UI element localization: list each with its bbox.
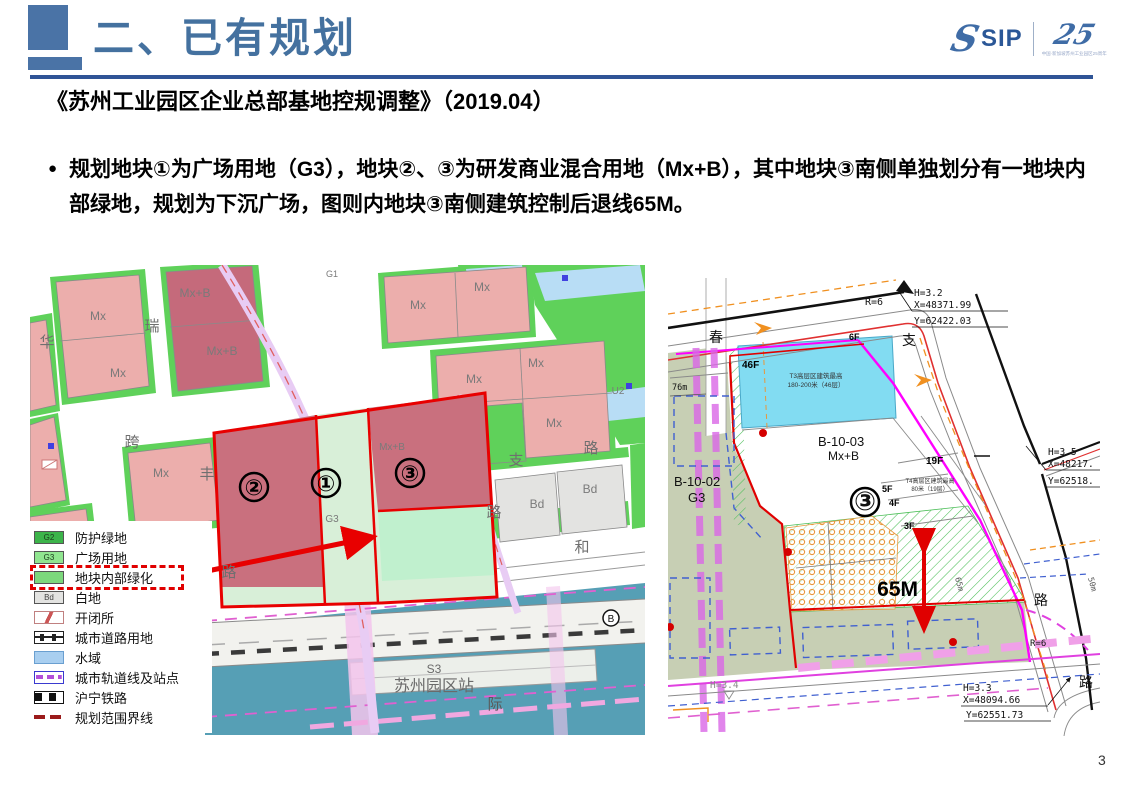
- parcel-b1002-use: G3: [688, 490, 705, 505]
- block-label-mx8: Mx: [153, 466, 169, 480]
- road-label-lu3: 路: [583, 440, 598, 457]
- callout1-x: X=48371.99: [914, 300, 971, 311]
- road-label-hua: 华: [39, 334, 54, 351]
- block-label-g3: G3: [325, 514, 339, 525]
- legend-item-water: 水域: [34, 647, 212, 667]
- road-label-zhi: 支: [508, 452, 523, 469]
- legend-label: 水域: [75, 648, 101, 667]
- legend-swatch-water: [34, 651, 64, 664]
- setback-65m-label: 65M: [877, 578, 918, 601]
- callout3-h: H=3.3: [963, 683, 992, 694]
- block-label-mx3: Mx: [410, 298, 426, 312]
- title-decoration-square: [28, 5, 68, 50]
- legend-swatch-road: [34, 631, 64, 644]
- legend-item-g2: G2 防护绿地: [34, 527, 212, 547]
- block-label-mxb-inner: Mx+B: [379, 442, 405, 453]
- t3-note-line2: 180-200米（46层）: [787, 380, 844, 389]
- block-label-mx2: Mx: [110, 366, 126, 380]
- legend-label: 开闭所: [75, 608, 114, 627]
- block-label-mx4: Mx: [474, 280, 490, 294]
- floor-5f: 5F: [882, 484, 893, 494]
- road-label-lu1: 路: [221, 564, 236, 581]
- block-label-g1: G1: [326, 269, 338, 279]
- legend-swatch-substation: [34, 611, 64, 624]
- callout3-y: Y=62551.73: [966, 710, 1023, 721]
- page-title: 二、已有规划: [93, 4, 357, 64]
- anniversary-25: 25: [1051, 21, 1098, 49]
- legend-item-substation: 开闭所: [34, 607, 212, 627]
- sip-logo: S SIP 25 中国·新加坡苏州工业园区25周年: [952, 14, 1117, 64]
- page-number: 3: [1098, 752, 1106, 768]
- dim-76m: 76m: [672, 383, 687, 393]
- road-label-lu2: 路: [486, 504, 501, 521]
- legend-label: 白地: [75, 588, 101, 607]
- floor-46f: 46F: [742, 360, 759, 371]
- callout2-x: X=48217.: [1048, 459, 1094, 470]
- block-label-bd1: Bd: [530, 497, 545, 511]
- legend-swatch-boundary: [34, 711, 64, 724]
- block-label-u2: U2: [612, 386, 625, 397]
- callout1-h: H=3.2: [914, 288, 943, 299]
- radius-r6-top: R=6: [865, 297, 883, 308]
- road-label-lu1: 路: [1034, 592, 1048, 608]
- station-name: 苏州园区站: [394, 677, 474, 695]
- logo-tagline: 中国·新加坡苏州工业园区25周年: [1042, 51, 1107, 57]
- plot-number-2: ②: [245, 475, 264, 500]
- bullet-text: 规划地块①为广场用地（G3），地块②、③为研发商业混合用地（Mx+B），其中地块…: [69, 152, 1088, 222]
- document-title: 《苏州工业园区企业总部基地控规调整》（2019.04）: [46, 84, 555, 116]
- legend-swatch-railway: [34, 691, 64, 704]
- block-label-mx7: Mx: [546, 416, 562, 430]
- logo-divider: [1033, 22, 1034, 56]
- sip-logo-text: SIP: [981, 25, 1023, 53]
- block-label-mx1: Mx: [90, 309, 106, 323]
- legend-label: 规划范围界线: [75, 708, 153, 727]
- callout1-y: Y=62422.03: [914, 316, 971, 327]
- map-legend: G2 防护绿地 G3 广场用地 地块内部绿化 Bd 白地 开闭所 城市道路用地 …: [30, 521, 212, 733]
- floor-3f: 3F: [904, 521, 915, 531]
- title-decoration-bar: [28, 57, 82, 70]
- planning-area: [214, 393, 497, 607]
- block-label-mx6: Mx: [528, 356, 544, 370]
- block-label-mxb2: Mx+B: [206, 344, 237, 358]
- t4-note-line2: 80米（19层）: [911, 485, 948, 493]
- road-label-lu2: 路: [1079, 674, 1093, 690]
- legend-swatch-metro: [34, 671, 64, 684]
- t4-note-line1: T4高层区建筑最高: [905, 477, 954, 485]
- road-label-feng: 丰: [199, 466, 214, 483]
- bullet-marker: ●: [48, 152, 57, 222]
- callout4-h: H=3.4: [710, 680, 739, 691]
- road-label-ji: 际: [487, 696, 502, 713]
- legend-item-boundary: 规划范围界线: [34, 707, 212, 727]
- legend-label: 城市道路用地: [75, 628, 153, 647]
- legend-item-g3: G3 广场用地: [34, 547, 212, 567]
- block-label-mx5: Mx: [466, 372, 482, 386]
- floor-6f: 6F: [849, 332, 860, 342]
- legend-swatch-bd: Bd: [34, 591, 64, 604]
- radius-r6-bottom: R=6: [1030, 639, 1046, 649]
- road-label-he: 和: [574, 539, 589, 556]
- parcel-b1002: B-10-02: [674, 474, 720, 489]
- station-code: S3: [427, 662, 442, 676]
- callout2-y: Y=62518.: [1048, 476, 1094, 487]
- legend-swatch-g3: G3: [34, 551, 64, 564]
- slide: 二、已有规划 S SIP 25 中国·新加坡苏州工业园区25周年 《苏州工业园区…: [0, 0, 1123, 794]
- legend-item-bd: Bd 白地: [34, 587, 212, 607]
- legend-label: 城市轨道线及站点: [75, 668, 179, 687]
- legend-item-metro: 城市轨道线及站点: [34, 667, 212, 687]
- plot-number-1: ①: [317, 471, 336, 496]
- block-label-bd2: Bd: [583, 482, 598, 496]
- floor-19f: 19F: [926, 456, 943, 467]
- parcel-b1003-use: Mx+B: [828, 449, 859, 463]
- legend-highlight-box: [30, 565, 184, 590]
- legend-label: 沪宁铁路: [75, 688, 127, 707]
- floor-4f: 4F: [889, 498, 900, 508]
- legend-label: 防护绿地: [75, 528, 127, 547]
- legend-swatch-g2: G2: [34, 531, 64, 544]
- title-underline: [30, 75, 1093, 79]
- road-label-rui: 瑞: [144, 318, 159, 335]
- station-b-label: B: [608, 614, 615, 625]
- dim-50m: 50m: [1086, 576, 1098, 592]
- t3-note-line1: T3高层区建筑最高: [789, 371, 843, 380]
- callout2-h: H=3.5: [1048, 447, 1077, 458]
- block-label-mxb1: Mx+B: [179, 286, 210, 300]
- plot-number-3: ③: [401, 461, 420, 486]
- road-label-zhi: 支: [902, 332, 916, 348]
- right-regulatory-map: 65M H=3.2 X=48371.99 Y=62422.03 H=3.5 X=…: [668, 278, 1100, 736]
- callout3-x: X=48094.66: [963, 695, 1020, 706]
- legend-item-railway: 沪宁铁路: [34, 687, 212, 707]
- road-label-kua: 跨: [124, 434, 139, 451]
- bullet-item: ● 规划地块①为广场用地（G3），地块②、③为研发商业混合用地（Mx+B），其中…: [48, 152, 1088, 222]
- sip-swirl-icon: S: [948, 21, 983, 57]
- legend-item-road: 城市道路用地: [34, 627, 212, 647]
- road-label-chun: 春: [709, 329, 723, 345]
- legend-label: 广场用地: [75, 548, 127, 567]
- parcel-b1003: B-10-03: [818, 434, 864, 449]
